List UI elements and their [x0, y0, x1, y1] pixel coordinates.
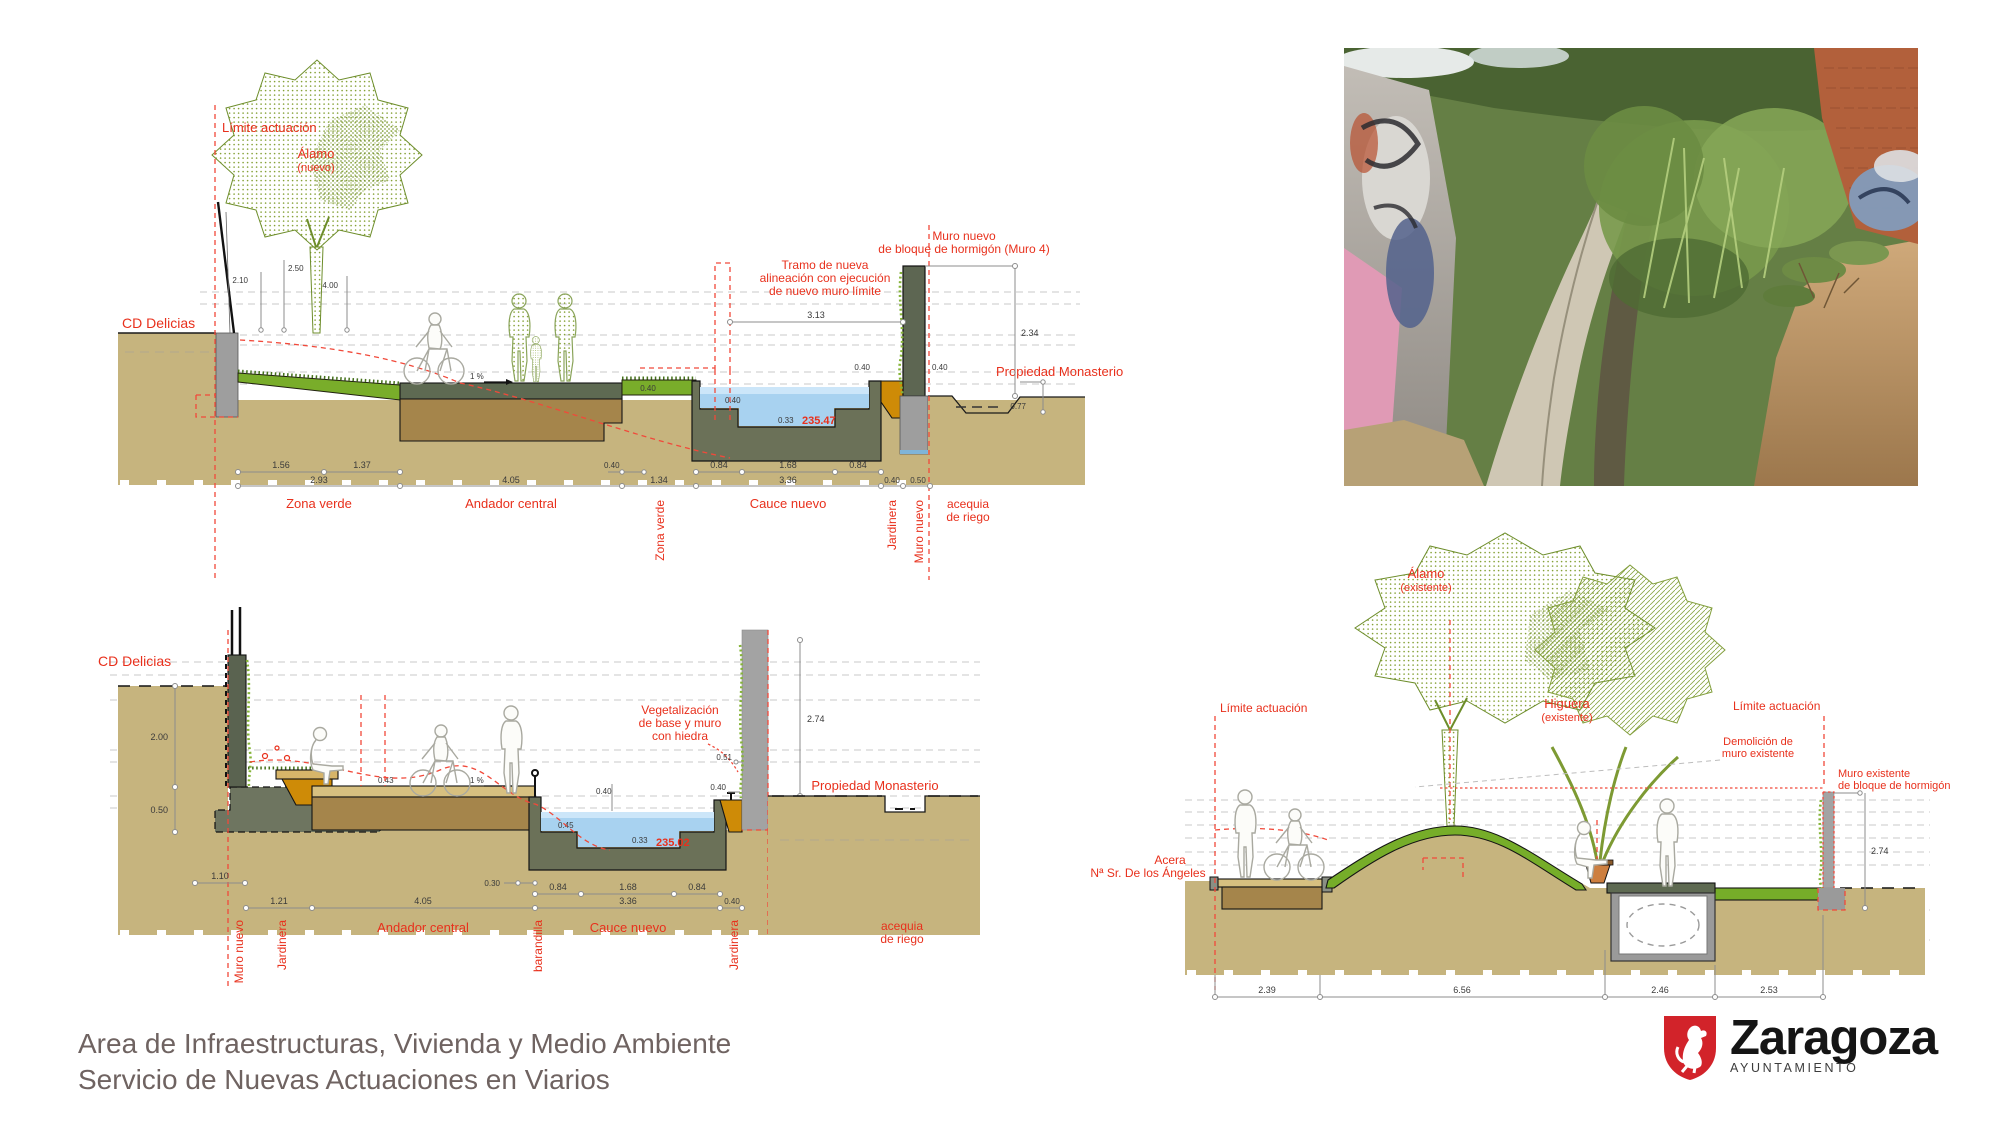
- label-jardinera-vertical-2a: Jardinera: [275, 920, 289, 970]
- label-alamo-existente: Álamo: [1408, 566, 1445, 581]
- label-muro-nuevo-vertical-2: Muro nuevo: [232, 920, 246, 984]
- label-barandilla-vertical: barandilla: [531, 920, 545, 972]
- label-vegetalizacion-3: con hiedra: [652, 729, 708, 743]
- dim-405: 4.05: [414, 896, 432, 906]
- dim-084-a: 0.84: [549, 882, 567, 892]
- dim-040-ivy: 0.40: [710, 783, 726, 792]
- existing-block-wall: [1818, 792, 1845, 910]
- label-cauce-nuevo-1: Cauce nuevo: [750, 496, 827, 511]
- label-muro-existente-1: Muro existente: [1838, 768, 1910, 780]
- dim-656: 6.56: [1453, 985, 1471, 995]
- footer-line-2: Servicio de Nuevas Actuaciones en Viario…: [78, 1062, 731, 1098]
- dim-274: 2.74: [1871, 846, 1889, 856]
- footer-line-1: Area de Infraestructuras, Vivienda y Med…: [78, 1026, 731, 1062]
- elevation-23502: 235.02: [656, 837, 690, 849]
- label-acequia-1b: de riego: [946, 510, 990, 524]
- label-muro-existente-2: de bloque de hormigón: [1838, 780, 1950, 792]
- dim-077: 0.77: [1010, 402, 1026, 411]
- label-tramo-3: de nuevo muro límite: [769, 284, 881, 298]
- people-figures: [311, 706, 522, 796]
- label-cauce-nuevo-2: Cauce nuevo: [590, 920, 667, 935]
- dim-030: 0.30: [484, 879, 500, 888]
- dim-033: 0.33: [778, 416, 794, 425]
- label-acera-2: Nª Sr. De los Ángeles: [1090, 865, 1205, 880]
- elevation-23547: 235.47: [802, 415, 836, 427]
- dim-050: 0.50: [150, 805, 168, 815]
- dim-293: 2.93: [310, 475, 328, 485]
- dim-051: 0.51: [716, 753, 732, 762]
- label-jardinera-vertical-1: Jardinera: [885, 500, 899, 550]
- label-acera-1: Acera: [1154, 853, 1186, 867]
- label-andador-central-1: Andador central: [465, 496, 557, 511]
- dim-040-b: 0.40: [932, 363, 948, 372]
- dim-210: 2.10: [232, 276, 248, 285]
- new-channel: 0.40 0.45 0.33 235.02: [529, 784, 726, 870]
- dim-168: 1.68: [779, 460, 797, 470]
- dim-040-water: 0.40: [725, 396, 741, 405]
- dim-040-strip: 0.40: [640, 384, 656, 393]
- dim-253: 2.53: [1760, 985, 1778, 995]
- zaragoza-shield-icon: [1660, 1014, 1720, 1082]
- label-limite-left: Límite actuación: [1220, 701, 1307, 715]
- dim-040-jard: 0.40: [884, 476, 900, 485]
- label-zona-verde-vertical: Zona verde: [653, 500, 667, 561]
- dim-313: 3.13: [807, 310, 825, 320]
- label-alamo-existente-sub: (existente): [1400, 582, 1451, 594]
- label-limite-right: Límite actuación: [1733, 699, 1820, 713]
- site-photo: [1344, 48, 1918, 486]
- dim-040-a: 0.40: [854, 363, 870, 372]
- dim-040-jard: 0.40: [724, 897, 740, 906]
- dim-400: 4.00: [322, 281, 338, 290]
- dim-405: 4.05: [502, 475, 520, 485]
- dim-168: 1.68: [619, 882, 637, 892]
- dim-134: 1.34: [650, 475, 668, 485]
- dim-156: 1.56: [272, 460, 290, 470]
- alamo-tree: [212, 60, 422, 333]
- dim-084-b: 0.84: [849, 460, 867, 470]
- people-figures: [404, 294, 576, 384]
- label-vegetalizacion-1: Vegetalización: [641, 703, 718, 717]
- demolition-leader: [1415, 760, 1720, 787]
- dim-239: 2.39: [1258, 985, 1276, 995]
- label-higuera-sub: (existente): [1541, 712, 1592, 724]
- label-alamo: Álamo: [298, 146, 335, 161]
- dim-040-sub: 0.40: [604, 461, 620, 470]
- dim-274: 2.74: [807, 714, 825, 724]
- logo-title: Zaragoza: [1730, 1014, 1937, 1063]
- dim-084-a: 0.84: [710, 460, 728, 470]
- label-vegetalizacion-2: de base y muro: [639, 716, 722, 730]
- tree-dimensions: 2.10 2.50 4.00: [232, 260, 349, 332]
- dim-250: 2.50: [288, 264, 304, 273]
- dim-234: 2.34: [1021, 328, 1039, 338]
- dim-336: 3.36: [779, 475, 797, 485]
- dim-110: 1.10: [211, 871, 229, 881]
- dim-336: 3.36: [619, 896, 637, 906]
- label-andador-central-2: Andador central: [377, 920, 469, 935]
- culvert: [1607, 883, 1715, 961]
- label-alamo-sub: (nuevo): [297, 162, 334, 174]
- cross-section-3-drawing: Álamo (existente) Higuera (existente) Lí…: [1070, 520, 1950, 1020]
- dim-033: 0.33: [632, 836, 648, 845]
- dim-050: 0.50: [910, 476, 926, 485]
- label-acequia-1a: acequia: [947, 497, 989, 511]
- label-zona-verde: Zona verde: [286, 496, 352, 511]
- dim-246: 2.46: [1651, 985, 1669, 995]
- label-cd-delicias-2: CD Delicias: [98, 653, 171, 669]
- slope-1pct: 1 %: [470, 776, 484, 785]
- label-limite-actuacion-1: Límite actuación: [222, 120, 317, 135]
- label-cd-delicias-1: CD Delicias: [122, 315, 195, 331]
- label-jardinera-vertical-2b: Jardinera: [727, 920, 741, 970]
- dim-137: 1.37: [353, 460, 371, 470]
- dim-040-water: 0.40: [596, 787, 612, 796]
- dim-084-b: 0.84: [688, 882, 706, 892]
- label-acequia-2b: de riego: [880, 932, 924, 946]
- sidewalk: [1210, 877, 1332, 909]
- label-muro4-2: de bloque de hormigón (Muro 4): [878, 242, 1049, 256]
- label-demolicion-1: Demolición de: [1723, 736, 1793, 748]
- label-tramo-1: Tramo de nueva: [782, 258, 869, 272]
- zaragoza-logo: Zaragoza AYUNTAMIENTO: [1660, 1014, 1937, 1082]
- label-muro4-1: Muro nuevo: [932, 229, 996, 243]
- sheet-footer: Area de Infraestructuras, Vivienda y Med…: [78, 1026, 731, 1099]
- label-muro-nuevo-vertical-1: Muro nuevo: [912, 500, 926, 564]
- label-higuera: Higuera: [1544, 696, 1590, 711]
- dim-121: 1.21: [270, 896, 288, 906]
- central-walkway: 0.43 1 %: [312, 776, 535, 830]
- label-acequia-2a: acequia: [881, 919, 923, 933]
- label-propiedad-2: Propiedad Monasterio: [811, 778, 938, 793]
- dim-200: 2.00: [150, 732, 168, 742]
- label-tramo-2: alineación con ejecución: [760, 271, 891, 285]
- label-demolicion-2: muro existente: [1722, 748, 1794, 760]
- monastery-ground: [768, 796, 980, 935]
- cross-section-2-drawing: 2.00 0.50 0.43 1 % 0.40 0.45 0.33 235.02: [80, 600, 1040, 1020]
- slope-1pct: 1 %: [470, 372, 484, 381]
- cross-section-1-drawing: 2.10 2.50 4.00 Límite actuación Álamo (n…: [80, 40, 1160, 585]
